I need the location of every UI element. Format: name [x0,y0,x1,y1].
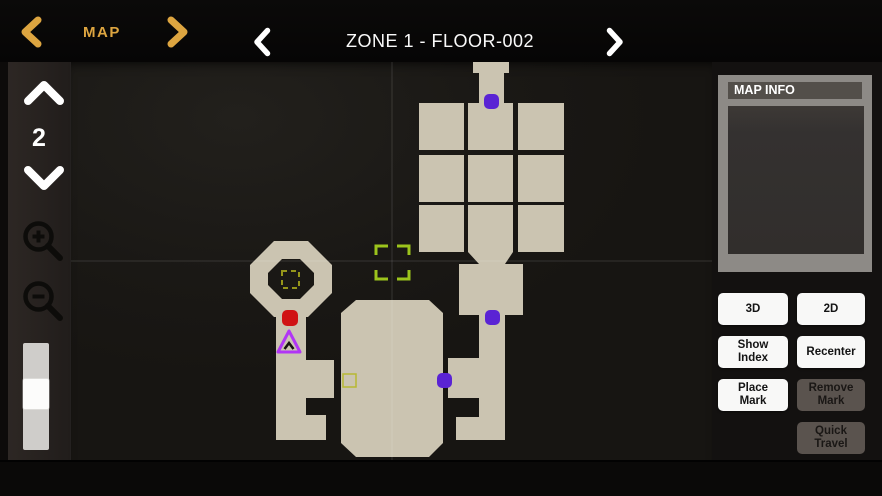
map-svg[interactable] [71,62,713,460]
bottom-bar [0,460,882,496]
zoom-slider-thumb[interactable] [23,379,49,409]
remove-mark-button: Remove Mark [797,379,865,411]
floor-down-button[interactable] [22,162,66,194]
grid-room [518,155,564,202]
left-branch-lower [306,415,326,440]
game-map-screen: MAP ZONE 1 - FLOOR-002 2 [0,0,882,496]
map-info-header: MAP INFO [728,82,862,99]
note-marker-octagon [282,271,299,288]
chevron-right-white-icon [604,46,626,61]
map-info-content [728,106,864,254]
left-branch-upper [306,360,334,398]
grid-room [419,155,464,202]
mid-room [459,264,523,315]
grid-room [518,205,564,252]
grid-room [468,103,513,150]
map-viewport [70,62,712,460]
door-marker-north [484,94,499,109]
place-mark-button[interactable]: Place Mark [718,379,788,411]
door-marker-east [437,373,452,388]
magnifier-plus-icon [19,253,67,268]
map-content: 2 [0,62,882,460]
chevron-up-icon [22,97,66,112]
right-branch-lower [456,417,479,440]
map-info-panel: MAP INFO [718,75,872,272]
zoom-out-button[interactable] [19,277,67,325]
floor-title: ZONE 1 - FLOOR-002 [0,31,880,52]
door-marker-mid [485,310,500,325]
recenter-button[interactable]: Recenter [797,336,865,368]
top-bar: MAP ZONE 1 - FLOOR-002 [0,0,882,62]
poi-marker [282,310,298,326]
show-index-button[interactable]: Show Index [718,336,788,368]
grid-room [419,103,464,150]
panel-buttons: 3D2DShow IndexRecenterPlace MarkRemove M… [718,293,865,454]
grid-room [468,205,513,252]
3d-button[interactable]: 3D [718,293,788,325]
current-floor-number: 2 [8,124,70,153]
grid-funnel [468,252,513,264]
magnifier-minus-icon [19,313,67,328]
floor-zoom-sidebar: 2 [0,62,70,460]
quick-travel-button: Quick Travel [797,422,865,454]
floor-next-button[interactable] [604,26,626,58]
south-corridor-right [479,315,505,440]
zoom-in-button[interactable] [19,217,67,265]
octagon-room [250,241,332,317]
grid-room [468,155,513,202]
grid-room [518,103,564,150]
2d-button[interactable]: 2D [797,293,865,325]
right-panel: MAP INFO 3D2DShow IndexRecenterPlace Mar… [712,62,882,460]
right-branch-upper [448,358,479,398]
grid-room [419,205,464,252]
chevron-down-icon [22,182,66,197]
floor-up-button[interactable] [22,77,66,109]
zoom-slider-track[interactable] [23,343,49,450]
